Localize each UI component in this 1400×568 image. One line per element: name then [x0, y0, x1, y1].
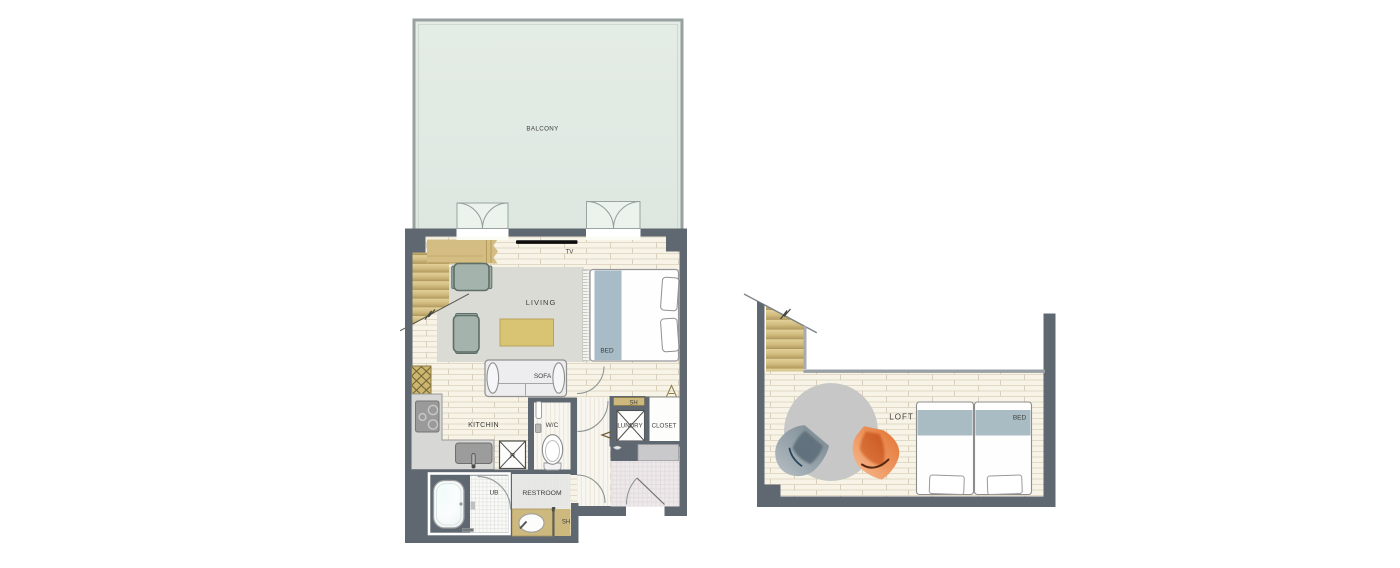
svg-text:UB: UB — [489, 490, 498, 497]
svg-text:BED: BED — [600, 348, 614, 355]
svg-text:R: R — [510, 453, 515, 460]
svg-text:SH: SH — [562, 520, 570, 526]
svg-text:TV: TV — [566, 249, 575, 256]
svg-text:LIVING: LIVING — [526, 298, 557, 307]
svg-text:SOFA: SOFA — [534, 373, 552, 380]
svg-text:CLOSET: CLOSET — [652, 423, 677, 430]
svg-text:SH: SH — [629, 401, 637, 407]
svg-text:W/C: W/C — [546, 422, 559, 429]
svg-text:RESTROOM: RESTROOM — [522, 490, 562, 497]
svg-text:LUNDRY: LUNDRY — [617, 423, 642, 430]
svg-text:LOFT: LOFT — [889, 413, 913, 422]
svg-text:KITCHIN: KITCHIN — [468, 422, 499, 429]
svg-text:BALCONY: BALCONY — [526, 126, 558, 133]
svg-text:BED: BED — [1013, 415, 1027, 422]
